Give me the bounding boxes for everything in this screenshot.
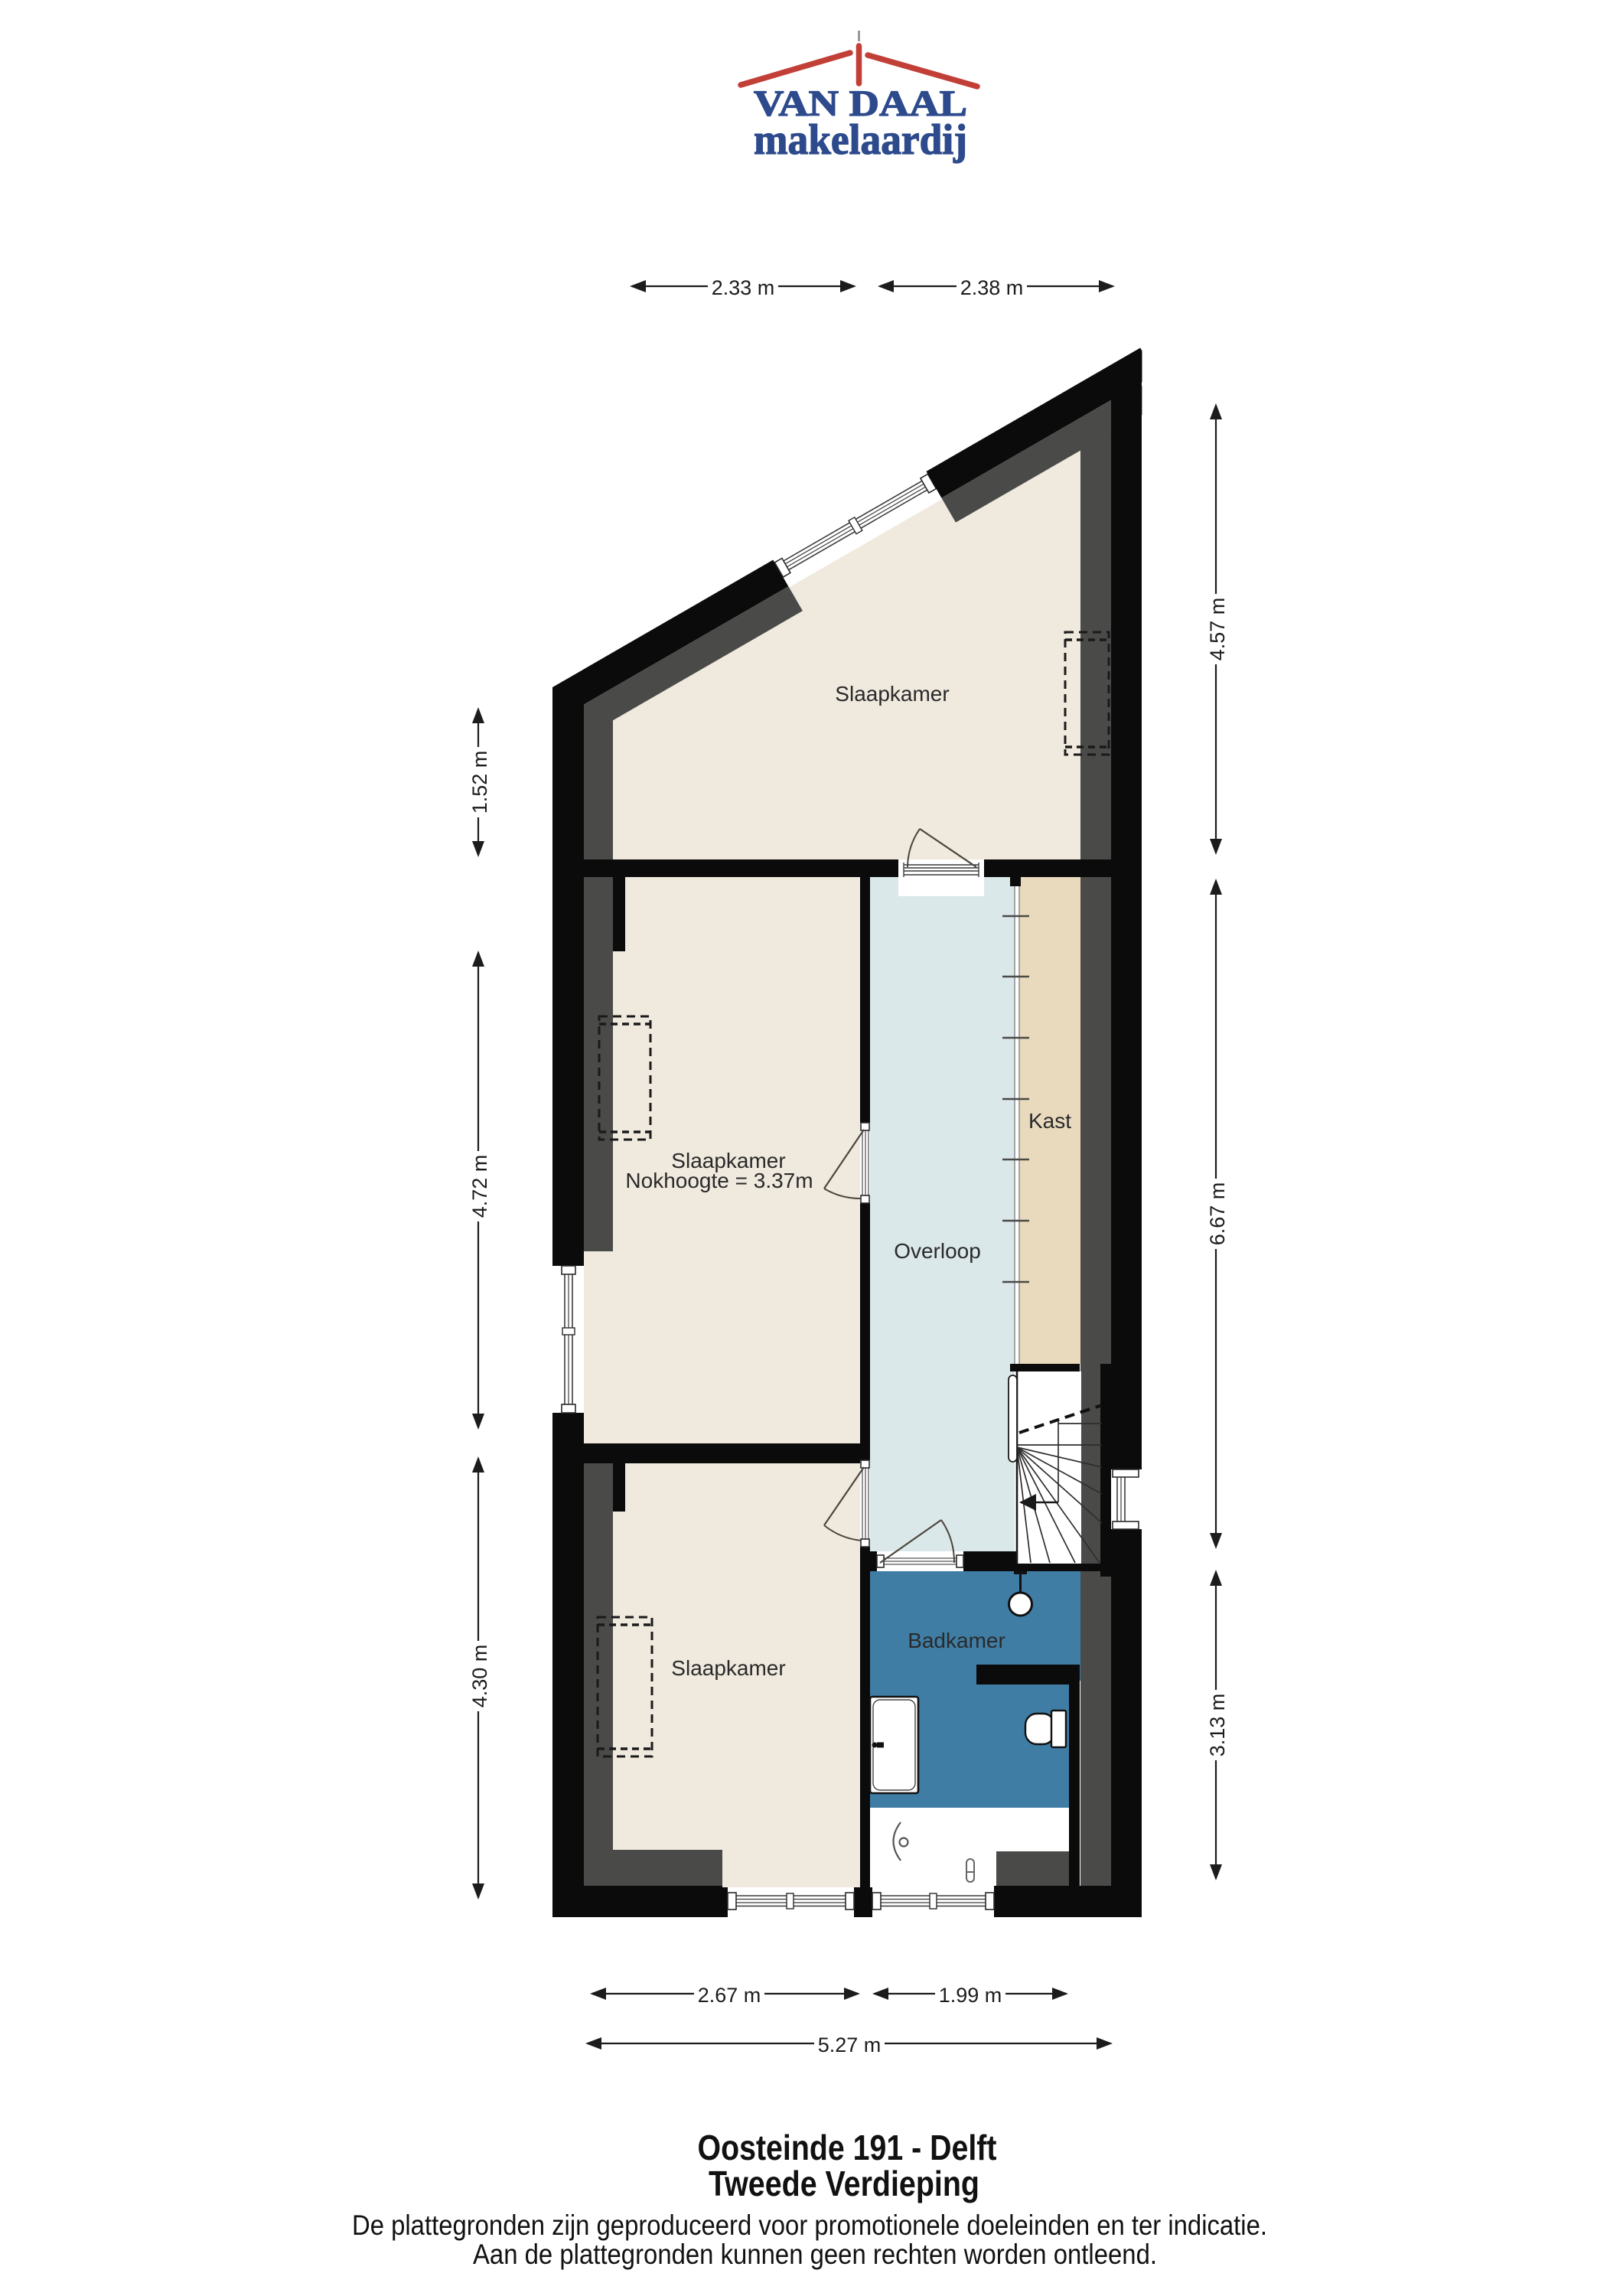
svg-text:Aan de plattegronden kunnen ge: Aan de plattegronden kunnen geen rechten… [473, 2239, 1157, 2270]
svg-text:2.38 m: 2.38 m [960, 276, 1024, 299]
svg-text:1.99 m: 1.99 m [939, 1984, 1002, 2007]
svg-text:4.57 m: 4.57 m [1206, 598, 1229, 661]
svg-text:6.67 m: 6.67 m [1206, 1182, 1229, 1246]
svg-text:De plattegronden zijn geproduc: De plattegronden zijn geproduceerd voor … [352, 2210, 1267, 2241]
svg-text:1.52 m: 1.52 m [468, 751, 491, 814]
svg-text:Slaapkamer: Slaapkamer [835, 682, 949, 706]
svg-text:2.33 m: 2.33 m [712, 276, 775, 299]
svg-text:Slaapkamer: Slaapkamer [671, 1656, 785, 1680]
svg-text:Oosteinde 191 - Delft: Oosteinde 191 - Delft [698, 2128, 997, 2167]
svg-text:makelaardij: makelaardij [754, 116, 967, 164]
svg-text:Overloop: Overloop [894, 1239, 981, 1263]
svg-text:Kast: Kast [1028, 1109, 1071, 1133]
svg-text:Nokhoogte = 3.37m: Nokhoogte = 3.37m [625, 1169, 813, 1192]
svg-text:Tweede Verdieping: Tweede Verdieping [709, 2164, 979, 2203]
svg-text:2.67 m: 2.67 m [698, 1984, 761, 2007]
svg-text:3.13 m: 3.13 m [1206, 1694, 1229, 1757]
svg-text:5.27 m: 5.27 m [818, 2033, 882, 2056]
svg-text:Badkamer: Badkamer [908, 1629, 1005, 1652]
svg-text:4.30 m: 4.30 m [468, 1645, 491, 1708]
svg-text:4.72 m: 4.72 m [468, 1155, 491, 1218]
